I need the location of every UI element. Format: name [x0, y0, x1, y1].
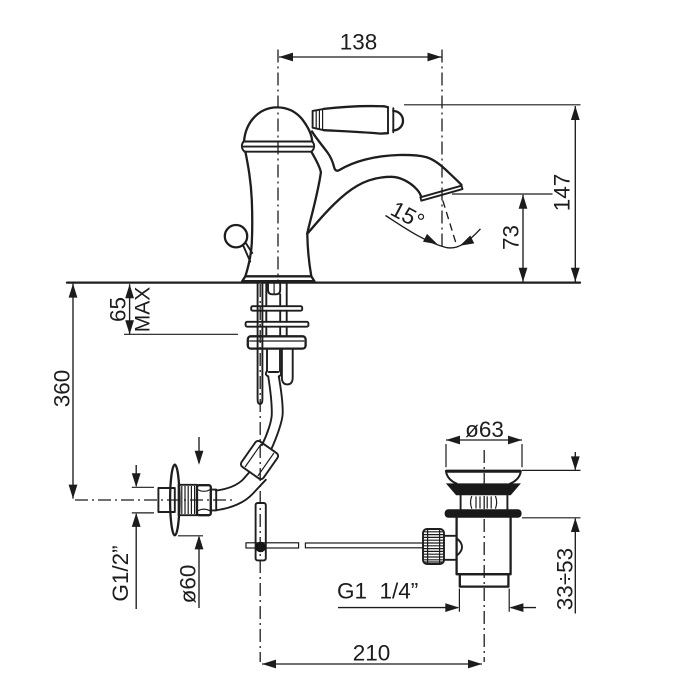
svg-text:ø60: ø60	[176, 565, 201, 604]
svg-text:G1 1/4”: G1 1/4”	[337, 579, 418, 604]
svg-text:210: 210	[353, 641, 391, 666]
svg-text:MAX: MAX	[132, 287, 155, 333]
svg-text:65: 65	[106, 297, 131, 322]
svg-text:ø63: ø63	[465, 417, 504, 442]
svg-text:33÷53: 33÷53	[553, 548, 578, 610]
svg-text:147: 147	[550, 174, 575, 212]
svg-text:G1/2”: G1/2”	[108, 545, 133, 601]
svg-text:138: 138	[340, 30, 378, 55]
svg-text:73: 73	[499, 225, 524, 250]
svg-text:360: 360	[50, 370, 75, 408]
